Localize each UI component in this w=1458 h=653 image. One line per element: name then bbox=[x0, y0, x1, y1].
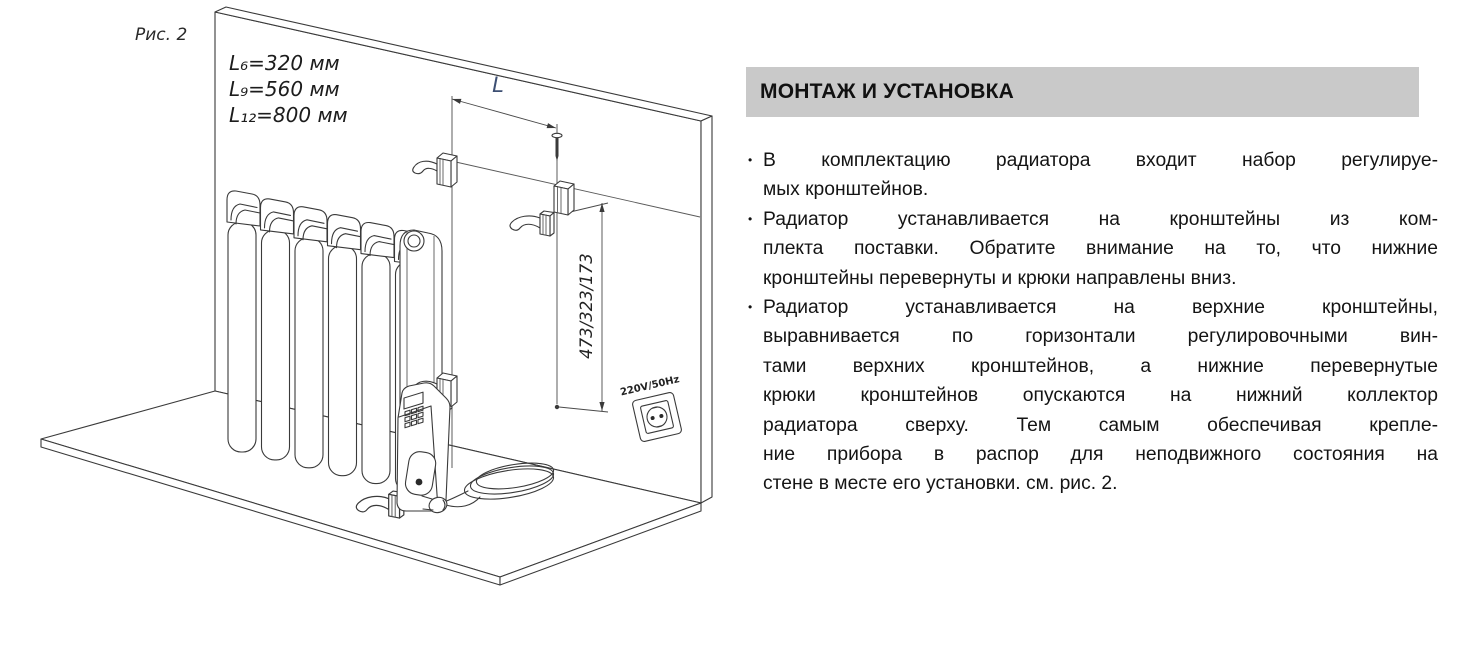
bullet-3-line-4: крюки кронштейнов опускаются на нижний к… bbox=[763, 381, 1438, 410]
bullet-item-2: • Радиатор устанавливается на кронштейны… bbox=[746, 205, 1438, 293]
bullet-3-line-3: тами верхних кронштейнов, а нижние перев… bbox=[763, 352, 1438, 381]
bullet-dot: • bbox=[748, 205, 752, 234]
bullet-1-line-2: мых кронштейнов. bbox=[763, 175, 1438, 204]
dimension-l-label: L bbox=[492, 73, 504, 97]
legend-line-3: L₁₂=800 мм bbox=[229, 103, 348, 127]
bullet-dot: • bbox=[748, 146, 752, 175]
dimension-height-label: 473/323/173 bbox=[577, 253, 596, 359]
control-unit-badge-dot bbox=[416, 479, 423, 486]
bullet-2-line-2: плекта поставки. Обратите внимание на то… bbox=[763, 234, 1438, 263]
bullet-3-line-5: радиатора сверху. Тем самым обеспечивая … bbox=[763, 411, 1438, 440]
figure-area: L 473/323/173 bbox=[0, 0, 730, 653]
bracket-top-right bbox=[554, 181, 574, 215]
bullet-item-3: • Радиатор устанавливается на верхние кр… bbox=[746, 293, 1438, 499]
content-area: МОНТАЖ И УСТАНОВКА • В комплектацию ради… bbox=[746, 0, 1440, 653]
bullet-3-line-7: стене в месте его установки. см. рис. 2. bbox=[763, 469, 1438, 498]
control-unit bbox=[397, 383, 450, 511]
bullet-3-line-2: выравнивается по горизонтали регулировоч… bbox=[763, 322, 1438, 351]
bullet-1-line-1: В комплектацию радиатора входит набор ре… bbox=[763, 146, 1438, 175]
installation-diagram: L 473/323/173 bbox=[0, 0, 730, 653]
section-title-banner: МОНТАЖ И УСТАНОВКА bbox=[746, 67, 1419, 117]
bullet-list: • В комплектацию радиатора входит набор … bbox=[746, 146, 1438, 499]
legend-line-1: L₆=320 мм bbox=[229, 51, 340, 75]
bullet-dot: • bbox=[748, 293, 752, 322]
bullet-3-line-1: Радиатор устанавливается на верхние крон… bbox=[763, 293, 1438, 322]
bullet-2-line-3: кронштейны перевернуты и крюки направлен… bbox=[763, 264, 1438, 293]
figure-caption: Рис. 2 bbox=[135, 25, 187, 45]
bullet-item-1: • В комплектацию радиатора входит набор … bbox=[746, 146, 1438, 205]
bullet-3-line-6: ние прибора в распор для неподвижного со… bbox=[763, 440, 1438, 469]
section-title: МОНТАЖ И УСТАНОВКА bbox=[746, 80, 1014, 104]
legend-line-2: L₉=560 мм bbox=[229, 77, 340, 101]
bullet-2-line-1: Радиатор устанавливается на кронштейны и… bbox=[763, 205, 1438, 234]
